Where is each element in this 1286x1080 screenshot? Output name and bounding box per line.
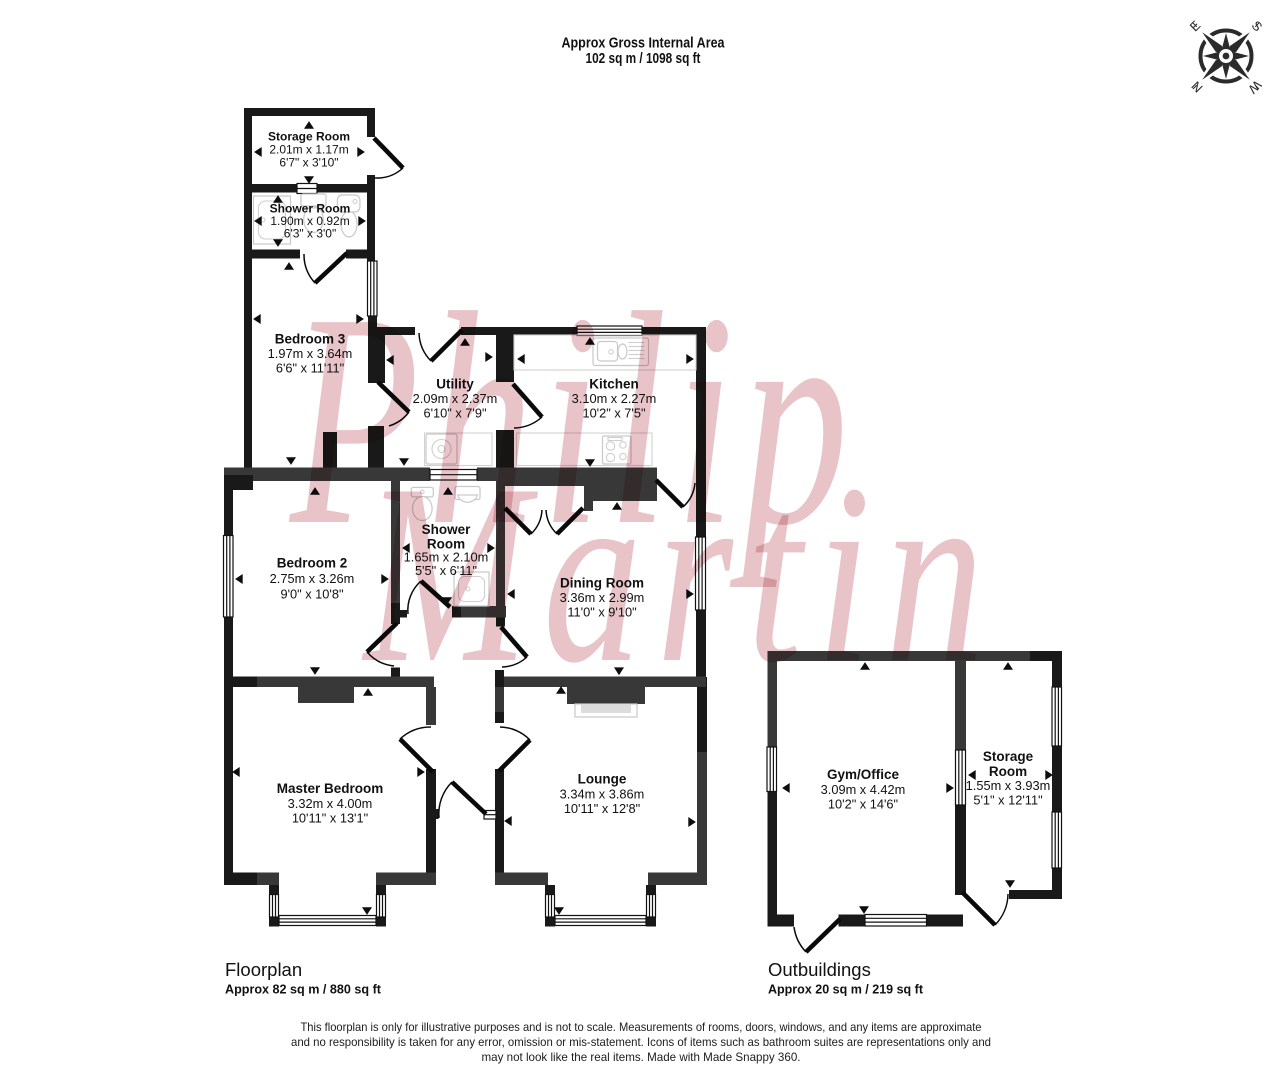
svg-text:3.32m x 4.00m: 3.32m x 4.00m: [288, 796, 373, 811]
svg-text:Martin: Martin: [361, 430, 998, 716]
svg-text:and no responsibility is taken: and no responsibility is taken for any e…: [291, 1036, 991, 1049]
svg-text:Approx Gross Internal Area: Approx Gross Internal Area: [562, 36, 726, 52]
svg-text:6'7" x 3'10": 6'7" x 3'10": [279, 156, 338, 170]
svg-text:9'0" x 10'8": 9'0" x 10'8": [280, 587, 343, 602]
svg-text:3.34m x 3.86m: 3.34m x 3.86m: [560, 787, 645, 802]
svg-text:Storage Room: Storage Room: [268, 130, 350, 144]
svg-text:Room: Room: [989, 764, 1027, 779]
svg-text:Approx 20 sq m / 219 sq ft: Approx 20 sq m / 219 sq ft: [768, 982, 924, 997]
svg-text:Approx 82 sq m / 880 sq ft: Approx 82 sq m / 880 sq ft: [225, 982, 382, 997]
svg-text:10'11" x 13'1": 10'11" x 13'1": [292, 811, 368, 826]
svg-text:This floorplan is only for ill: This floorplan is only for illustrative …: [301, 1021, 982, 1034]
svg-text:102 sq m / 1098 sq ft: 102 sq m / 1098 sq ft: [586, 51, 701, 67]
svg-text:may not look like the real ite: may not look like the real items. Made w…: [482, 1051, 801, 1064]
svg-text:1.55m x 3.93m: 1.55m x 3.93m: [966, 778, 1051, 793]
svg-text:6'3" x 3'0": 6'3" x 3'0": [284, 227, 336, 241]
svg-text:3.09m x 4.42m: 3.09m x 4.42m: [821, 782, 906, 797]
svg-text:Outbuildings: Outbuildings: [768, 959, 871, 980]
svg-text:10'11" x 12'8": 10'11" x 12'8": [564, 801, 640, 816]
svg-text:Lounge: Lounge: [578, 772, 627, 787]
svg-text:Storage: Storage: [983, 749, 1034, 764]
svg-text:Master Bedroom: Master Bedroom: [277, 781, 384, 796]
svg-text:Gym/Office: Gym/Office: [827, 767, 900, 782]
svg-text:2.01m x 1.17m: 2.01m x 1.17m: [269, 143, 348, 157]
svg-text:5'1" x 12'11": 5'1" x 12'11": [973, 793, 1042, 808]
svg-text:Floorplan: Floorplan: [225, 959, 302, 980]
svg-text:10'2" x 14'6": 10'2" x 14'6": [828, 797, 898, 812]
svg-text:Shower Room: Shower Room: [270, 201, 351, 215]
